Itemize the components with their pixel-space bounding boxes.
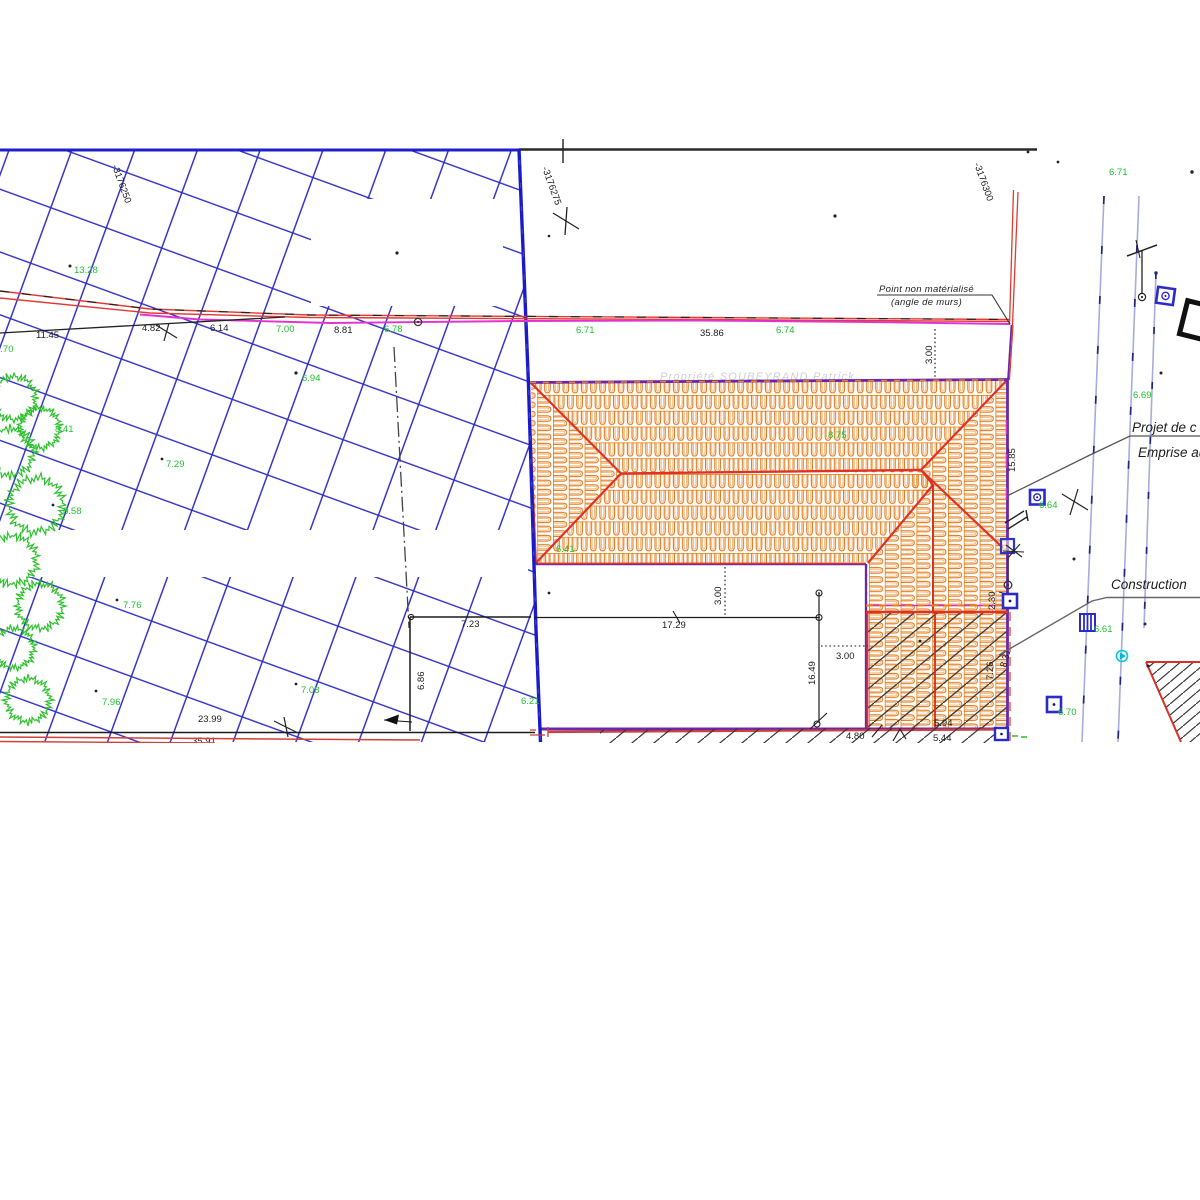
svg-text:5.94: 5.94 [934,718,953,729]
svg-text:6.41: 6.41 [556,544,575,555]
svg-text:6.71: 6.71 [1109,167,1128,178]
svg-text:7.29: 7.29 [166,459,185,470]
svg-text:Construction: Construction [1111,577,1187,592]
svg-text:8.75: 8.75 [828,430,847,441]
svg-text:(angle de murs): (angle de murs) [891,297,962,308]
svg-text:7.23: 7.23 [461,619,480,630]
svg-text:6.78: 6.78 [384,324,403,335]
svg-text:6.61: 6.61 [1094,624,1113,635]
svg-text:6.14: 6.14 [210,323,229,334]
svg-text:6.69: 6.69 [1133,390,1152,401]
svg-text:6.21: 6.21 [521,696,540,707]
svg-text:3.00: 3.00 [713,587,724,606]
svg-text:17.29: 17.29 [662,620,686,631]
svg-text:6.64: 6.64 [1039,500,1058,511]
svg-text:6.94: 6.94 [302,373,321,384]
svg-text:3.00: 3.00 [924,346,935,365]
svg-text:5.44: 5.44 [933,733,952,744]
svg-text:7.76: 7.76 [123,600,142,611]
svg-text:8.58: 8.58 [63,506,82,517]
svg-text:15.85: 15.85 [1007,448,1018,472]
svg-text:6.70: 6.70 [1058,707,1077,718]
svg-text:6.70: 6.70 [0,344,14,355]
svg-text:6.86: 6.86 [416,672,427,691]
svg-text:6.74: 6.74 [776,325,795,336]
svg-text:4.80: 4.80 [846,731,865,742]
svg-text:8.41: 8.41 [55,424,74,435]
svg-text:Point non matérialisé: Point non matérialisé [879,284,974,295]
svg-text:Emprise au: Emprise au [1138,445,1200,460]
svg-text:7.00: 7.00 [276,324,295,335]
svg-text:35.86: 35.86 [700,328,724,339]
svg-text:7.08: 7.08 [301,685,320,696]
svg-text:7.96: 7.96 [102,697,121,708]
svg-text:7.26: 7.26 [985,662,996,681]
svg-text:13.28: 13.28 [74,265,98,276]
svg-text:3.00: 3.00 [836,651,855,662]
svg-text:11.45: 11.45 [36,330,59,341]
svg-text:8.81: 8.81 [334,325,353,336]
svg-text:6.71: 6.71 [576,325,595,336]
svg-text:4.82: 4.82 [142,323,161,334]
svg-text:2.30: 2.30 [987,592,998,611]
svg-text:Projet de c: Projet de c [1132,420,1197,435]
svg-text:16.49: 16.49 [807,661,818,685]
svg-text:23.99: 23.99 [198,714,222,725]
